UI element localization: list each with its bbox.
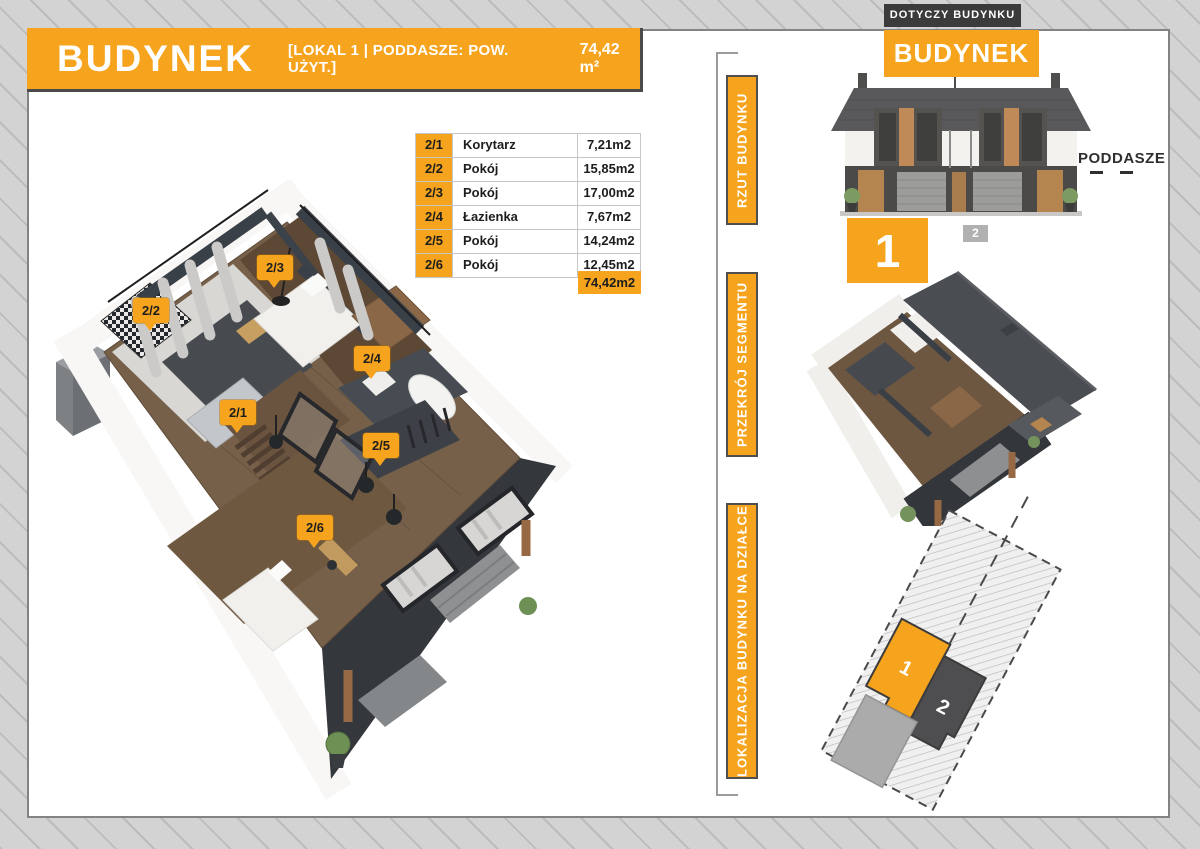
room-no-cell: 2/3 [416,182,453,205]
table-row: 2/3 Pokój 17,00m2 [416,182,640,206]
room-name-cell: Pokój [453,254,578,277]
header-subtitle: [LOKAL 1 | PODDASZE: POW. UŻYT.] [288,42,546,76]
side-tab-lokalizacja: LOKALIZACJA BUDYNKU NA DZIAŁCE [726,503,758,779]
room-no-cell: 2/1 [416,134,453,157]
room-no-cell: 2/4 [416,206,453,229]
table-row: 2/4 Łazienka 7,67m2 [416,206,640,230]
side-tab-przekroj-segmentu: PRZEKRÓJ SEGMENTU [726,272,758,457]
room-name-cell: Pokój [453,182,578,205]
total-area-cell: 74,42m2 [578,271,641,294]
floorplan-pin-2-2: 2/2 [133,298,169,323]
side-tab-rzut-budynku: RZUT BUDYNKU [726,75,758,225]
room-no-cell: 2/6 [416,254,453,277]
header-title: BUDYNEK [57,38,254,80]
floorplan-pin-2-1: 2/1 [220,400,256,425]
brochure-page: BUDYNEK [LOKAL 1 | PODDASZE: POW. UŻYT.]… [0,0,1200,849]
rooms-table: 2/1 Korytarz 7,21m2 2/2 Pokój 15,85m2 2/… [415,133,641,278]
unit2-badge: 2 [963,225,988,242]
section-guide-tick-top [716,52,738,54]
section-guide-tick-bottom [716,794,738,796]
room-name-cell: Korytarz [453,134,578,157]
applies-to-badge: DOTYCZY BUDYNKU [884,4,1021,27]
room-name-cell: Pokój [453,230,578,253]
room-no-cell: 2/5 [416,230,453,253]
poddasze-label: PODDASZE [1078,150,1165,167]
floorplan-pin-2-5: 2/5 [363,433,399,458]
building-elevation-illustration [826,68,1096,218]
room-area-cell: 14,24m2 [578,230,640,253]
floorplan-pin-2-4: 2/4 [354,346,390,371]
table-row: 2/2 Pokój 15,85m2 [416,158,640,182]
building-name-badge: BUDYNEK [884,30,1039,77]
floorplan-pin-2-6: 2/6 [297,515,333,540]
floorplan-pin-2-3: 2/3 [257,255,293,280]
section-guide-line [716,52,718,796]
room-name-cell: Łazienka [453,206,578,229]
room-name-cell: Pokój [453,158,578,181]
poddasze-underline [1120,171,1133,174]
siteplan-illustration: 1 2 [790,495,1125,825]
page-header: BUDYNEK [LOKAL 1 | PODDASZE: POW. UŻYT.]… [27,28,643,92]
poddasze-underline [1090,171,1103,174]
room-area-cell: 7,21m2 [578,134,640,157]
building-cutaway-illustration [795,258,1105,526]
room-area-cell: 7,67m2 [578,206,640,229]
table-row: 2/1 Korytarz 7,21m2 [416,134,640,158]
table-row: 2/5 Pokój 14,24m2 [416,230,640,254]
room-area-cell: 17,00m2 [578,182,640,205]
room-no-cell: 2/2 [416,158,453,181]
unit1-badge: 1 [847,218,928,283]
room-area-cell: 15,85m2 [578,158,640,181]
header-area-value: 74,42 m² [580,41,640,77]
